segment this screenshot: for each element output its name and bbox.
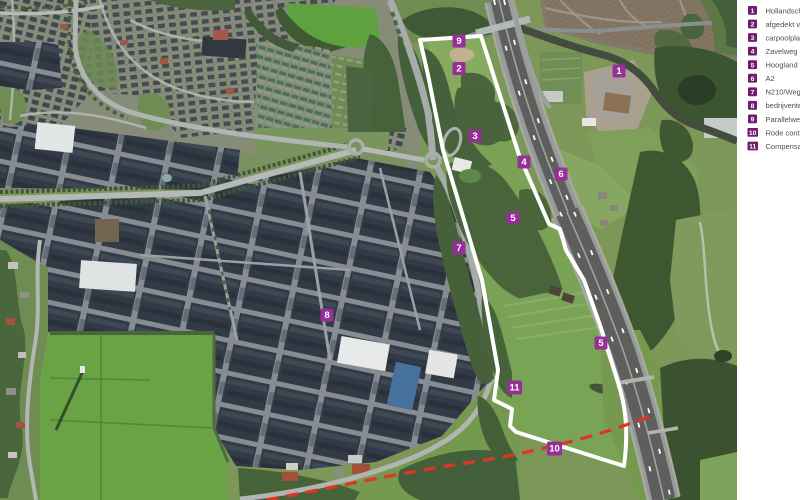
svg-text:6: 6: [751, 76, 755, 83]
svg-text:5: 5: [751, 62, 755, 69]
svg-text:7: 7: [751, 89, 755, 96]
svg-text:2: 2: [456, 64, 461, 75]
svg-text:afgedekt vuilstort: afgedekt vuilstort: [766, 20, 800, 29]
svg-text:1: 1: [616, 66, 622, 77]
svg-text:3: 3: [472, 131, 477, 142]
svg-text:3: 3: [751, 35, 755, 42]
svg-text:6: 6: [558, 169, 563, 180]
svg-text:Hoogland: Hoogland: [766, 61, 798, 70]
svg-text:4: 4: [521, 157, 527, 168]
svg-text:Parallelweg: Parallelweg: [766, 115, 800, 124]
svg-text:2: 2: [751, 22, 755, 29]
svg-text:1: 1: [751, 8, 755, 15]
svg-text:8: 8: [751, 103, 755, 110]
svg-text:7: 7: [456, 243, 461, 254]
svg-text:Compensatiegebied: Compensatiegebied: [766, 142, 800, 151]
svg-text:5: 5: [598, 338, 604, 349]
svg-text:Hollandsche IJssel: Hollandsche IJssel: [766, 6, 800, 15]
svg-text:11: 11: [749, 144, 756, 151]
svg-text:11: 11: [509, 383, 520, 394]
svg-text:9: 9: [456, 36, 461, 47]
svg-text:9: 9: [751, 117, 755, 124]
svg-text:8: 8: [324, 310, 329, 321]
svg-text:bedrijventerrein: bedrijventerrein: [766, 101, 800, 110]
svg-text:carpoolplaats: carpoolplaats: [766, 33, 800, 42]
svg-text:4: 4: [751, 49, 755, 56]
svg-text:10: 10: [749, 130, 757, 137]
svg-text:5: 5: [510, 213, 516, 224]
svg-text:A2: A2: [766, 74, 775, 83]
svg-text:N210/Wegafrit: N210/Wegafrit: [766, 88, 800, 97]
svg-text:Zavelweg: Zavelweg: [766, 47, 798, 56]
svg-text:10: 10: [549, 444, 560, 455]
svg-text:Rode contour: Rode contour: [766, 128, 800, 137]
